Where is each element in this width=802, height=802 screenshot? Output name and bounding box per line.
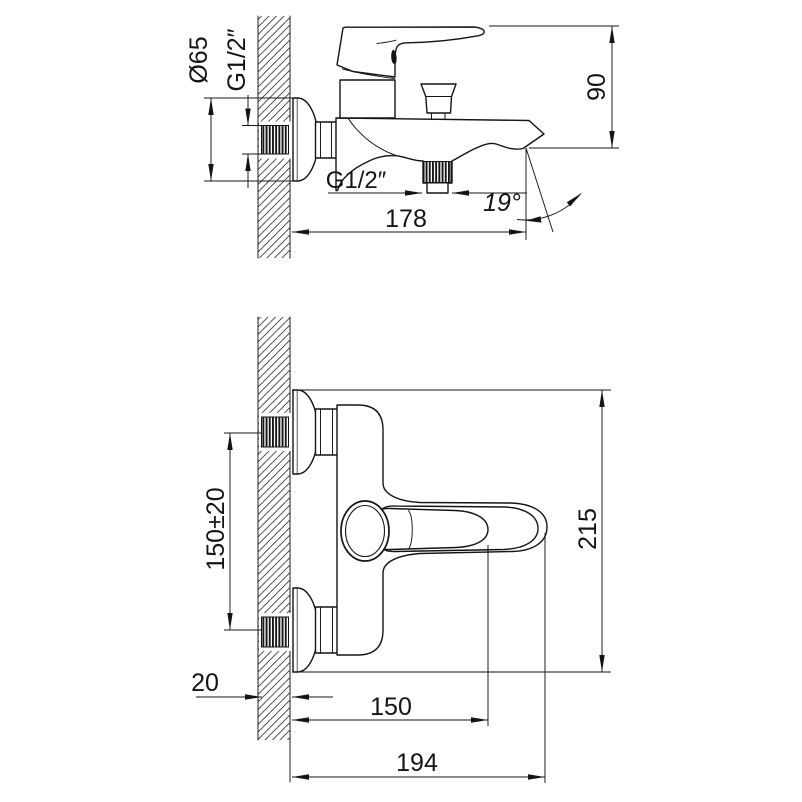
dim-label-178: 178 bbox=[385, 205, 427, 233]
dim-label-20: 20 bbox=[191, 669, 219, 697]
connection-nut bbox=[316, 122, 338, 158]
lower-inlet-threads bbox=[262, 617, 289, 647]
dim-label-angle-19: 19° bbox=[483, 189, 521, 217]
dim-label-diameter-65: Ø65 bbox=[185, 36, 213, 83]
handle-cap-inner bbox=[346, 506, 385, 557]
upper-inlet-threads bbox=[262, 417, 289, 447]
dim-label-150: 150 bbox=[370, 693, 412, 721]
dim-label-inlet-thread: G1/2″ bbox=[223, 28, 251, 91]
wall-section bbox=[258, 16, 291, 258]
wall-section-front bbox=[258, 317, 291, 782]
dim-label-90: 90 bbox=[583, 73, 611, 101]
inlet-pipe-threads bbox=[262, 126, 289, 155]
technical-drawing: Ø65 G1/2″ 90 G1/2″ 178 bbox=[0, 0, 802, 802]
dim-label-outlet-thread: G1/2″ bbox=[326, 167, 387, 194]
dim-label-215: 215 bbox=[574, 508, 602, 550]
shower-outlet-threads bbox=[424, 162, 451, 183]
dim-label-194: 194 bbox=[396, 749, 438, 777]
dim-label-150-20: 150±20 bbox=[202, 487, 230, 570]
drawing-page: Ø65 G1/2″ 90 G1/2″ 178 bbox=[0, 0, 802, 802]
cartridge-housing bbox=[340, 80, 395, 118]
